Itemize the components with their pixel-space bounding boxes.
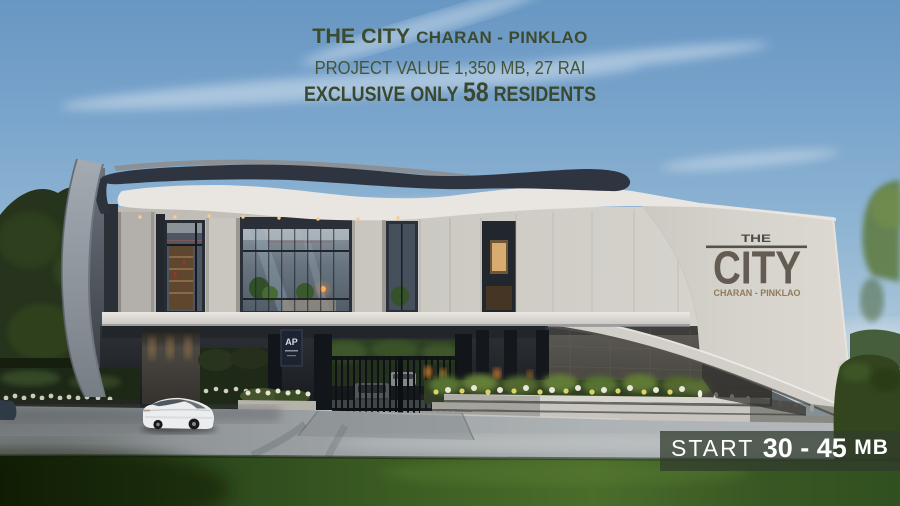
svg-text:CHARAN - PINKLAO: CHARAN - PINKLAO [714, 288, 801, 298]
svg-text:CITY: CITY [713, 242, 801, 294]
svg-text:AP: AP [285, 337, 298, 347]
